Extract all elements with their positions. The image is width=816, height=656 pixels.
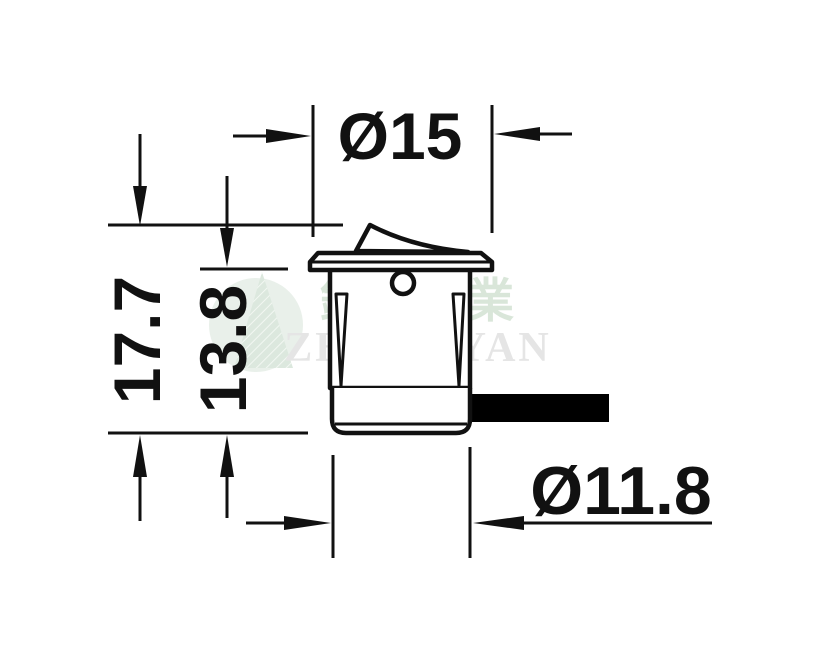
arrow-up-icon <box>220 435 234 477</box>
arrow-down-icon <box>133 186 147 226</box>
dimension-label-body-diameter: Ø11.8 <box>530 453 712 529</box>
dimension-top-diameter: Ø15 <box>233 99 572 237</box>
technical-drawing: 鐘嚴實業 ZHONGYAN <box>0 0 816 656</box>
dimension-label-overall-height: 17.7 <box>100 276 174 404</box>
dimension-label-top-diameter: Ø15 <box>338 99 463 173</box>
rocker-actuator <box>356 225 468 252</box>
arrow-left-icon <box>473 516 524 530</box>
detent-circle <box>392 272 414 294</box>
drawing-canvas: 鐘嚴實業 ZHONGYAN <box>0 0 816 656</box>
arrow-right-icon <box>284 516 331 530</box>
dimension-body-diameter: Ø11.8 <box>246 447 712 558</box>
arrow-left-icon <box>494 127 540 141</box>
dimension-label-body-height: 13.8 <box>186 285 260 413</box>
switch-drawing <box>310 225 609 433</box>
base-housing <box>332 388 470 433</box>
wire-lead <box>468 394 609 422</box>
arrow-down-icon <box>220 228 234 267</box>
arrow-up-icon <box>133 435 147 477</box>
arrow-right-icon <box>266 129 311 143</box>
